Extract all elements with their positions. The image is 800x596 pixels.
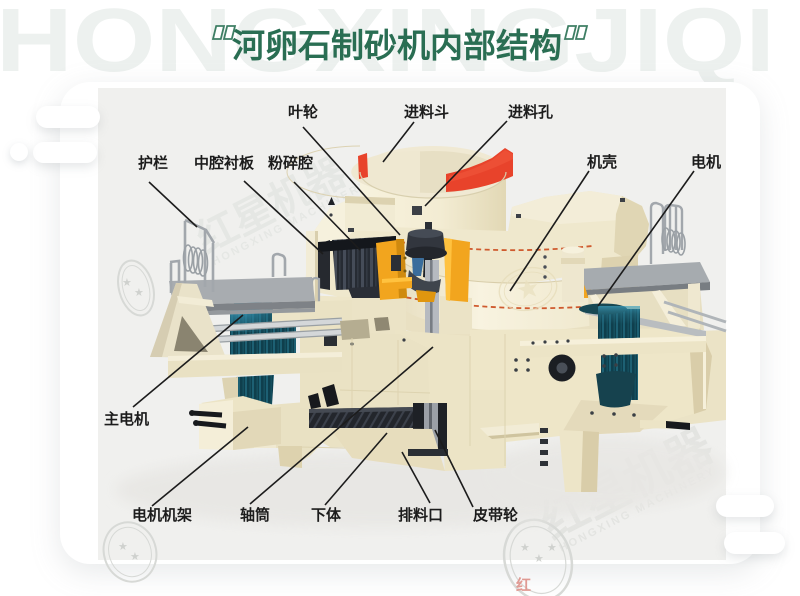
svg-text:排料口: 排料口 [398, 506, 443, 524]
svg-text:★: ★ [122, 277, 132, 289]
svg-text:粉碎腔: 粉碎腔 [268, 154, 313, 172]
svg-text:下体: 下体 [311, 506, 342, 524]
svg-text:护栏: 护栏 [138, 154, 168, 172]
svg-text:主电机: 主电机 [104, 410, 149, 428]
svg-text:电机: 电机 [691, 153, 721, 171]
svg-text:★: ★ [534, 553, 544, 565]
svg-text:★: ★ [520, 542, 530, 554]
svg-text:红: 红 [516, 576, 531, 594]
svg-text:中腔衬板: 中腔衬板 [194, 154, 255, 172]
svg-text:轴筒: 轴筒 [240, 506, 270, 524]
svg-text:皮带轮: 皮带轮 [473, 506, 518, 524]
svg-text:机壳: 机壳 [587, 153, 617, 171]
svg-text:电机机架: 电机机架 [132, 506, 192, 524]
svg-text:进料孔: 进料孔 [508, 103, 553, 121]
svg-text:★: ★ [118, 541, 128, 553]
svg-text:叶轮: 叶轮 [288, 103, 318, 121]
svg-text:★: ★ [134, 287, 144, 299]
svg-text:★: ★ [547, 542, 557, 554]
svg-text:★: ★ [130, 551, 140, 563]
svg-text:进料斗: 进料斗 [404, 103, 449, 121]
